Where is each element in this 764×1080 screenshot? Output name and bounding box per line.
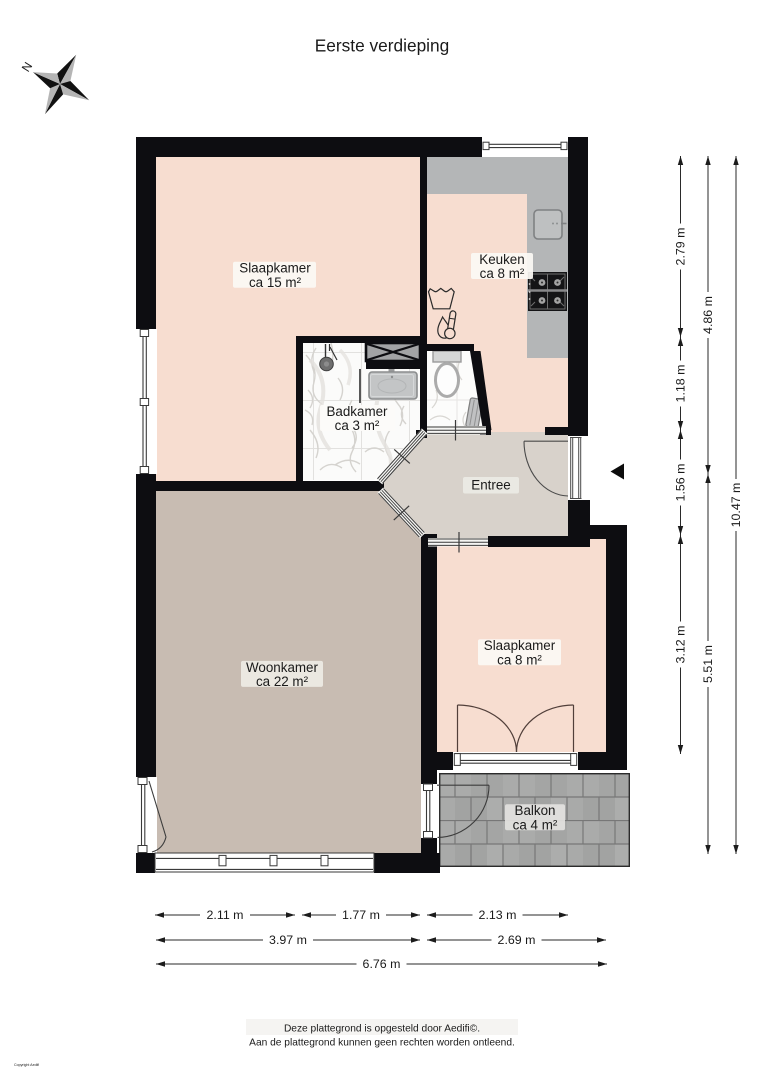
svg-text:Slaapkamer: Slaapkamer [239,261,311,276]
svg-text:2.79 m: 2.79 m [674,228,688,266]
svg-text:Balkon: Balkon [515,803,556,818]
svg-text:2.11 m: 2.11 m [207,908,244,922]
svg-text:3.12 m: 3.12 m [674,626,688,664]
svg-text:Slaapkamer: Slaapkamer [484,638,556,653]
svg-text:ca 8 m²: ca 8 m² [497,653,542,668]
svg-text:1.18 m: 1.18 m [674,365,688,403]
svg-text:2.13 m: 2.13 m [479,908,517,922]
svg-text:Keuken: Keuken [479,252,524,267]
svg-text:5.51 m: 5.51 m [701,645,715,683]
svg-text:1.56 m: 1.56 m [674,464,688,502]
svg-text:10.47 m: 10.47 m [729,483,743,528]
svg-text:6.76 m: 6.76 m [363,957,401,971]
svg-text:ca 15 m²: ca 15 m² [249,275,302,290]
svg-text:ca 3 m²: ca 3 m² [335,418,380,433]
svg-text:2.69 m: 2.69 m [498,933,536,947]
svg-text:Aan de plattegrond kunnen geen: Aan de plattegrond kunnen geen rechten w… [249,1038,515,1049]
svg-text:1.77 m: 1.77 m [342,908,380,922]
svg-text:ca 4 m²: ca 4 m² [513,818,558,833]
svg-text:Copyright Aedifi: Copyright Aedifi [14,1063,39,1067]
svg-text:ca 8 m²: ca 8 m² [480,266,525,281]
svg-text:Eerste verdieping: Eerste verdieping [315,36,450,56]
svg-text:Entree: Entree [471,478,510,493]
svg-text:Deze plattegrond is opgesteld: Deze plattegrond is opgesteld door Aedif… [284,1024,480,1035]
svg-text:Woonkamer: Woonkamer [246,660,318,675]
svg-text:ca 22 m²: ca 22 m² [256,674,309,689]
svg-text:4.86 m: 4.86 m [701,296,715,334]
svg-text:Badkamer: Badkamer [326,404,388,419]
svg-text:3.97 m: 3.97 m [269,933,307,947]
